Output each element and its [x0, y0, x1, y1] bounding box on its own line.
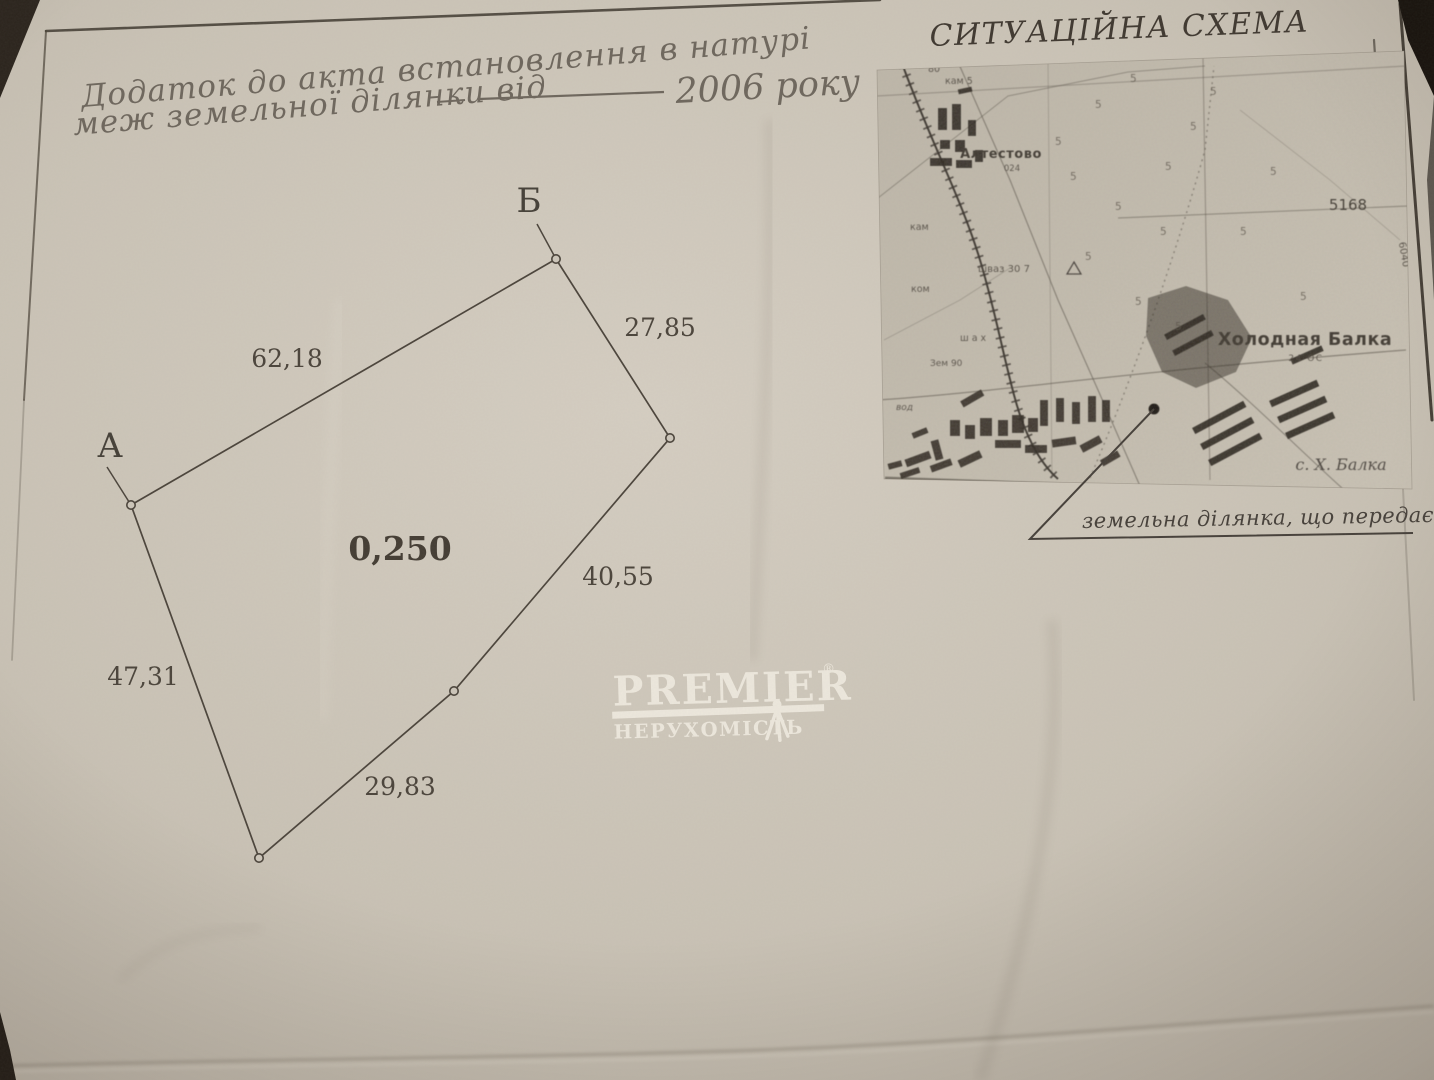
document-canvas: Додаток до акта встановлення в натурі ме… — [0, 0, 1434, 1080]
scanned-document-photo: Додаток до акта встановлення в натурі ме… — [0, 0, 1434, 1080]
photo-grain — [0, 0, 1434, 1080]
